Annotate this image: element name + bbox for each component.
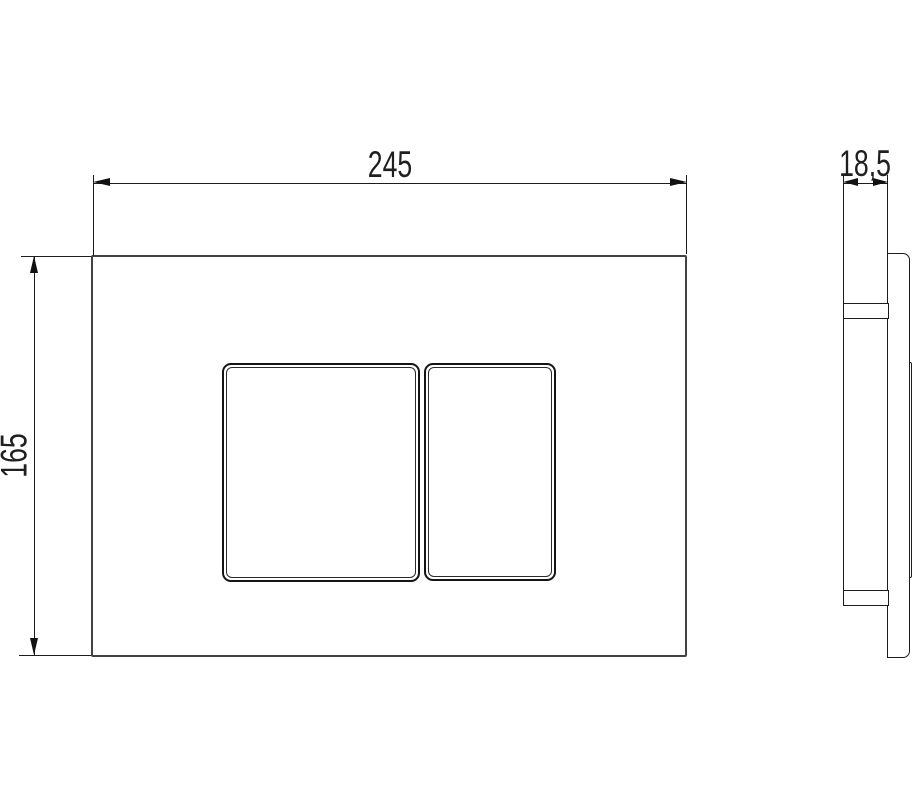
height-extension-line-bottom (19, 655, 91, 656)
height-arrowhead-up-icon (30, 256, 38, 273)
large-flush-button (222, 363, 420, 582)
depth-extension-line-right (887, 175, 888, 255)
width-extension-line-right (686, 175, 687, 254)
width-arrowhead-left-icon (93, 178, 110, 186)
large-flush-button-inner-contour (226, 367, 416, 578)
side-view-top-mounting-tab (843, 303, 889, 319)
depth-dimension-label: 18,5 (829, 145, 901, 182)
height-dimension-label: 165 (0, 420, 33, 492)
side-view-bottom-mounting-tab (843, 590, 889, 606)
height-arrowhead-down-icon (30, 638, 38, 655)
width-extension-line-left (93, 175, 94, 256)
small-flush-button (424, 363, 556, 581)
width-dimension-label: 245 (354, 146, 426, 183)
technical-drawing-canvas: 245 165 18,5 (0, 0, 915, 800)
side-view-front-face-line (843, 175, 844, 605)
width-arrowhead-right-icon (670, 178, 687, 186)
side-view-plate-body (887, 253, 910, 658)
small-flush-button-inner-contour (428, 367, 552, 577)
